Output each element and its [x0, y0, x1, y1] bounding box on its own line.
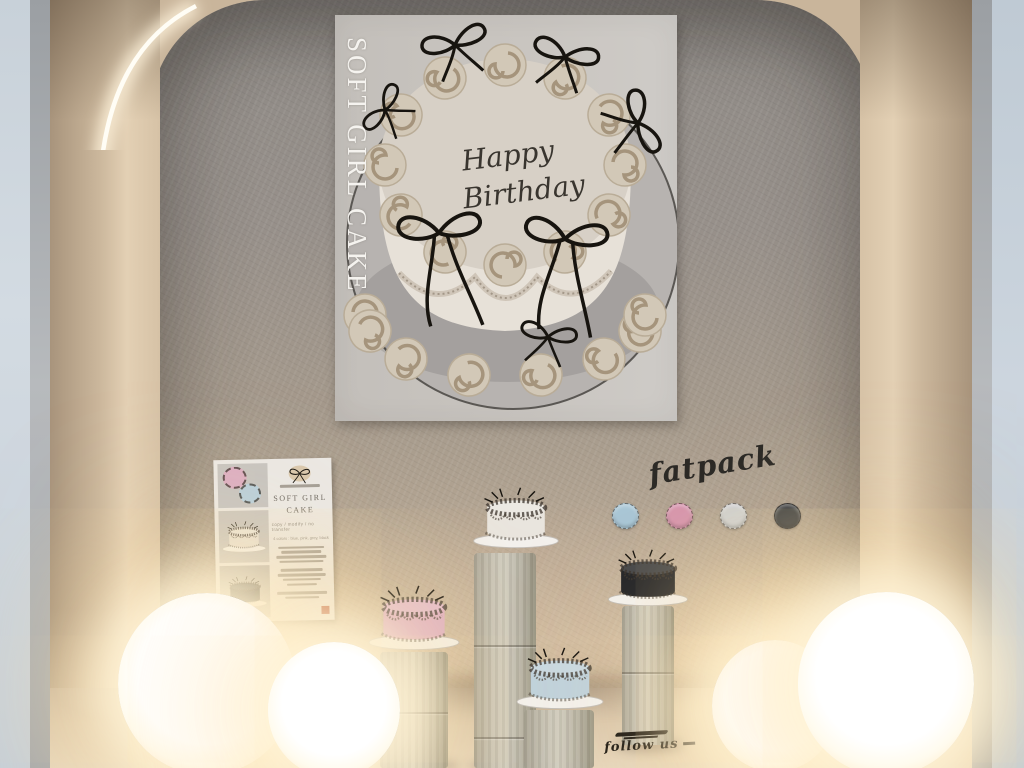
fine-print-block	[276, 589, 328, 599]
left-frame-edge	[30, 0, 50, 768]
brand-logo	[288, 465, 310, 481]
right-wall-shadow	[860, 0, 972, 120]
fine-print-block	[275, 543, 327, 563]
thumbnail-cream-cake	[218, 510, 269, 563]
info-title: SOFT GIRL CAKE	[273, 491, 327, 516]
swatch-black[interactable]	[774, 503, 801, 529]
bow-logo-icon	[282, 463, 316, 484]
right-outer-strip	[992, 0, 1024, 768]
brand-name-line	[280, 484, 320, 487]
swatch-blue[interactable]	[612, 503, 639, 529]
pedestal-front	[524, 710, 594, 768]
left-outer-strip	[0, 0, 30, 768]
main-cake-poster[interactable]: SOFT GIRL CAKE	[335, 15, 677, 421]
sphere-lamp-small-left	[268, 642, 400, 768]
fine-print-block	[276, 566, 328, 586]
cake-illustration: Happy Birthday	[335, 15, 677, 421]
right-frame-edge	[972, 0, 992, 768]
sphere-lamp-large-left	[118, 593, 296, 768]
poster-vertical-title: SOFT GIRL CAKE	[341, 37, 372, 419]
pink-cake[interactable]	[366, 584, 462, 651]
swatch-pink[interactable]	[666, 503, 693, 529]
thumbnail-overhead-cakes	[217, 463, 268, 508]
sphere-lamp-large-right	[798, 592, 974, 768]
swatch-grey[interactable]	[720, 503, 747, 529]
permissions-line: copy / modify / no transfer	[272, 520, 330, 531]
store-display-scene: SOFT GIRL CAKE	[0, 0, 1024, 768]
colors-line: 4 colors : blue, pink, grey, black	[273, 534, 329, 540]
black-cake[interactable]	[606, 548, 690, 607]
marketplace-badge	[321, 606, 329, 614]
fatpack-swatches	[612, 503, 801, 529]
left-wall-shadow	[50, 0, 160, 120]
blue-cake[interactable]	[514, 646, 606, 710]
pedestal-medium	[622, 606, 674, 745]
white-cake[interactable]	[471, 486, 561, 549]
info-text-column: SOFT GIRL CAKE copy / modify / no transf…	[270, 462, 331, 617]
